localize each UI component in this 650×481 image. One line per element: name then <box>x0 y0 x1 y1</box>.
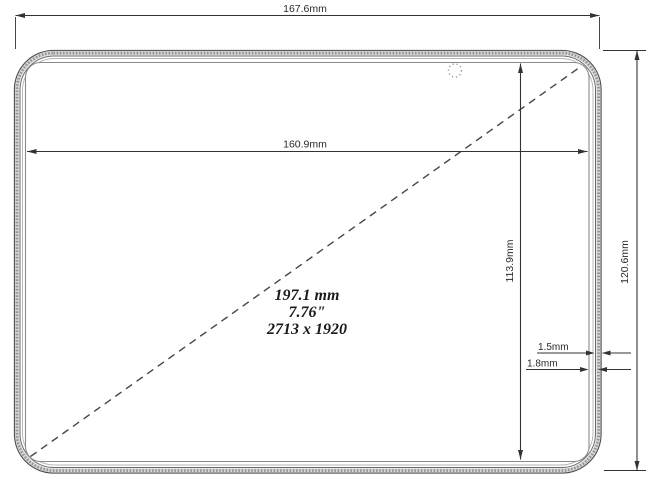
resolution-label: 2713 x 1920 <box>266 321 347 338</box>
outer-height-label: 120.6mm <box>619 240 631 284</box>
screen-height-label: 113.9mm <box>504 239 516 282</box>
diagonal-inch-label: 7.76" <box>289 304 326 321</box>
outer-width-label: 167.6mm <box>283 3 327 15</box>
diagonal-mm-label: 197.1 mm <box>275 287 340 304</box>
drawing-canvas: 197.1 mm 7.76" 2713 x 1920 167.6mm 160.9… <box>0 0 650 481</box>
gap-small-label: 1.5mm <box>538 342 569 353</box>
screen-width-label: 160.9mm <box>283 139 327 151</box>
gap-large-label: 1.8mm <box>527 359 558 370</box>
dimension-drawing: 197.1 mm 7.76" 2713 x 1920 167.6mm 160.9… <box>0 0 650 481</box>
